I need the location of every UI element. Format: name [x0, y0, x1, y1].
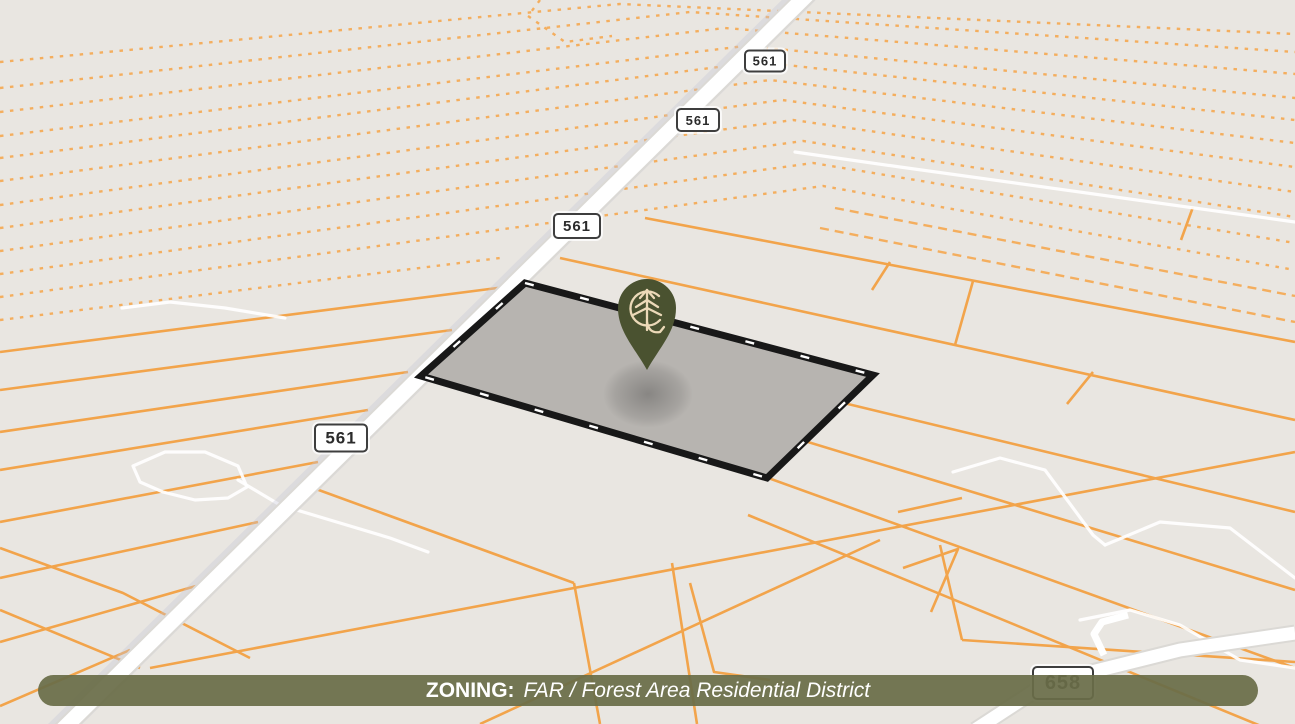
parcel-line	[0, 330, 452, 390]
parcel-line-dotted	[0, 46, 1295, 136]
parcel-line-dotted	[0, 4, 1295, 62]
route-shield-561: 561	[744, 50, 786, 73]
parcel-line	[898, 498, 962, 512]
zoning-label: ZONING:	[426, 679, 515, 703]
zoning-banner: ZONING: FAR / Forest Area Residential Di…	[38, 675, 1258, 706]
trail-line	[1105, 522, 1295, 578]
map-viewport[interactable]: 561561561561658 ZONING: FAR / Forest Are…	[0, 0, 1295, 724]
parcel-line	[775, 432, 1295, 590]
parcel-line	[940, 545, 962, 640]
parcel-line	[872, 262, 890, 290]
parcel-line-dashed	[835, 208, 1295, 296]
route-shield-561: 561	[314, 424, 368, 453]
parcel-line-dotted	[0, 28, 1295, 112]
parcel-line	[903, 549, 958, 612]
route-shield-561: 561	[553, 213, 601, 239]
parcel-line	[955, 281, 973, 345]
trail-line	[795, 152, 1295, 222]
route-shield-561: 561	[676, 108, 720, 132]
parcel-line	[1067, 372, 1093, 404]
parcel-line	[1181, 207, 1193, 240]
parcel-line	[790, 390, 1295, 512]
zoning-value: FAR / Forest Area Residential District	[524, 679, 871, 703]
parcel-line	[0, 287, 505, 352]
parcel-line	[0, 410, 368, 470]
property-pin[interactable]	[610, 272, 686, 376]
parcel-line	[305, 485, 574, 583]
parcel-line	[645, 218, 1295, 342]
trail-line	[122, 302, 285, 318]
parcel-line-dashed	[820, 228, 1295, 322]
